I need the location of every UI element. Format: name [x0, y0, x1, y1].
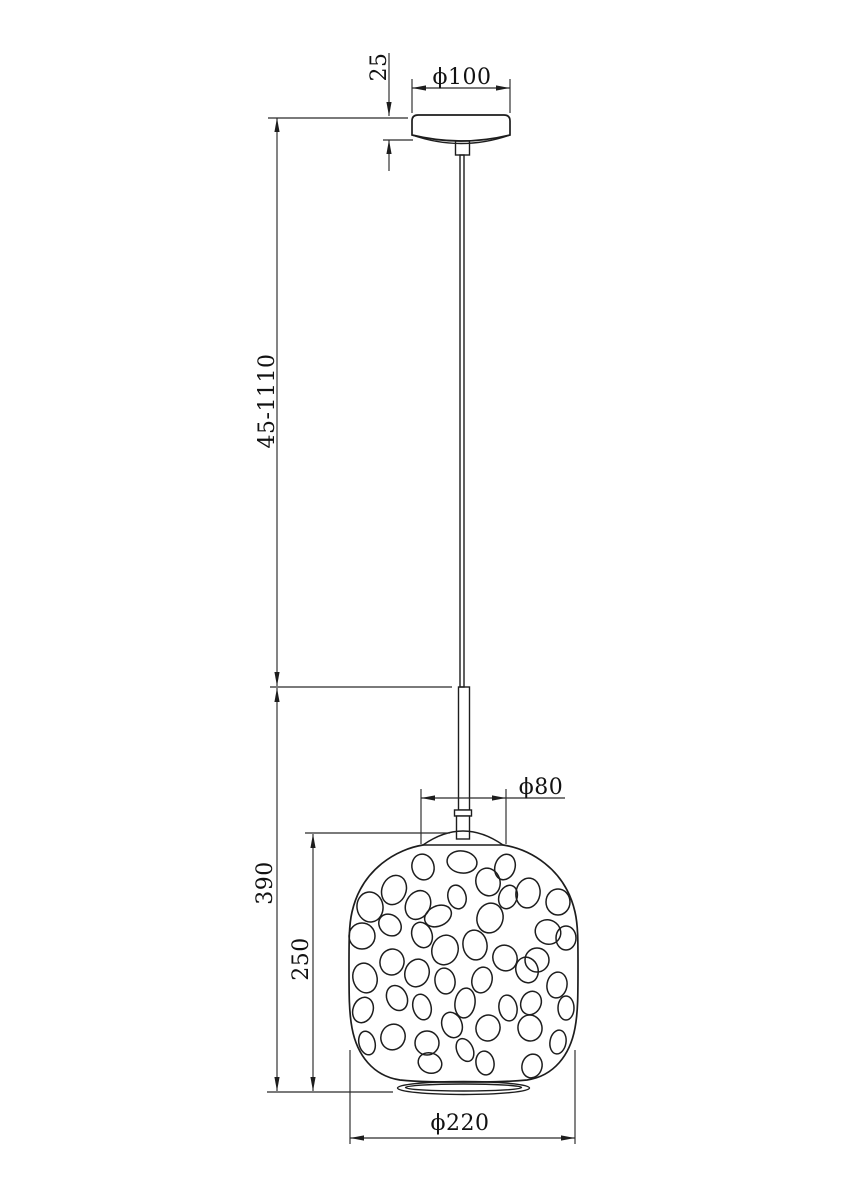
pebble-perforation	[350, 960, 381, 995]
pebble-perforation	[415, 1031, 439, 1055]
arrowhead	[561, 1135, 575, 1140]
ceiling-canopy	[412, 115, 510, 144]
dim-shade-diameter: ϕ220	[350, 1050, 575, 1144]
socket-flange	[455, 810, 472, 816]
canopy-height-label: 25	[367, 53, 392, 82]
arrowhead	[386, 140, 391, 154]
pebble-perforation	[382, 982, 411, 1014]
shade-top-diameter-label: ϕ80	[519, 775, 564, 800]
arrowhead	[310, 1077, 315, 1091]
shade-diameter-label: ϕ220	[431, 1111, 490, 1136]
canopy-diameter-label: ϕ100	[433, 65, 492, 90]
pebble-perforation	[558, 996, 574, 1020]
pebble-perforation	[473, 1012, 503, 1043]
pebble-perforation	[438, 1009, 466, 1040]
arrowhead	[274, 688, 279, 702]
arrowhead	[350, 1135, 364, 1140]
arrowhead	[421, 795, 435, 800]
arrowhead	[496, 85, 510, 90]
pebble-perforation	[461, 928, 490, 962]
lamp-socket	[457, 816, 470, 839]
suspension-assembly	[455, 141, 472, 839]
arrowhead	[310, 834, 315, 848]
dim-canopy-height: 25	[367, 53, 413, 172]
arrowhead	[274, 1077, 279, 1091]
pendant-lamp-drawing: 25 ϕ100 45-1110 390 250	[0, 0, 848, 1200]
pebble-perforation	[415, 1049, 444, 1076]
pebble-perforation	[410, 992, 434, 1022]
pebble-perforation	[525, 948, 549, 972]
pebble-perforation	[433, 966, 457, 995]
pebble-perforation	[548, 1029, 568, 1055]
dim-shade-top-diameter: ϕ80	[421, 775, 565, 844]
pebble-perforation	[401, 956, 433, 991]
canopy-body	[412, 115, 510, 141]
canopy-bottom-rim	[412, 135, 510, 144]
shade-bottom-rim-inner	[406, 1084, 522, 1091]
lower-rod	[459, 687, 470, 810]
arrowhead	[274, 118, 279, 132]
suspension-wire	[460, 155, 464, 687]
pebble-perforation	[374, 910, 405, 941]
arrowhead	[274, 672, 279, 686]
pebble-perforation	[474, 1050, 496, 1077]
pebble-perforation	[491, 852, 518, 883]
arrowhead	[412, 85, 426, 90]
arrowhead	[386, 102, 391, 116]
pebble-perforation	[546, 889, 570, 915]
pebble-perforation	[349, 994, 377, 1025]
pebble-perforation	[531, 915, 566, 949]
pebble-perforation	[377, 946, 407, 977]
dim-canopy-diameter: ϕ100	[412, 65, 510, 113]
suspension-length-label: 45-1110	[255, 354, 280, 449]
pebble-perforation	[446, 849, 479, 875]
shade-height-label: 250	[289, 937, 314, 981]
lamp-shade	[349, 831, 578, 1095]
pebble-perforation	[517, 988, 545, 1018]
pebble-perforation	[377, 1020, 410, 1054]
pebble-perforation	[545, 970, 569, 999]
pebble-perforation	[453, 1036, 478, 1065]
pebble-perforation	[409, 852, 437, 883]
fixture-drop-label: 390	[253, 861, 278, 905]
pebble-perforation	[356, 1029, 378, 1056]
pebble-perforation	[497, 994, 519, 1023]
pebble-perforation	[421, 901, 455, 931]
technical-drawing-canvas: 25 ϕ100 45-1110 390 250	[0, 0, 848, 1200]
pebble-perforation	[469, 965, 495, 995]
arrowhead	[492, 795, 506, 800]
pebble-perforation	[349, 923, 375, 949]
pebble-perforation	[408, 919, 436, 950]
dim-suspension-length: 45-1110	[255, 118, 408, 686]
pebble-perforation	[516, 1013, 544, 1043]
pebble-pattern	[349, 849, 576, 1080]
